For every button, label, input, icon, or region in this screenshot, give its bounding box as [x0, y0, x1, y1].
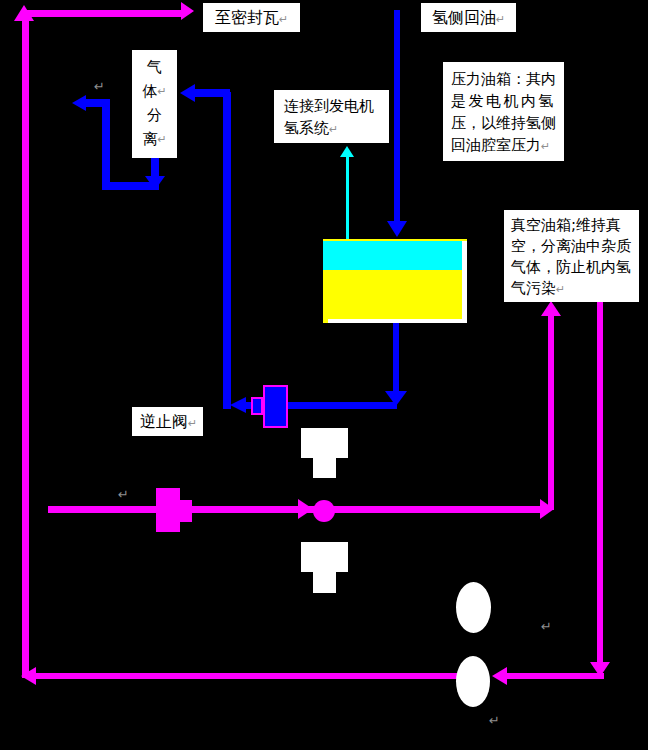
oil-valve-body — [156, 488, 180, 532]
arrowhead-left — [180, 84, 195, 102]
note-line: 气体，防止机内氢 — [511, 257, 639, 278]
paragraph-mark: ↵ — [329, 123, 338, 136]
arrowhead-left — [21, 667, 36, 685]
note-line: 气污染 — [511, 279, 556, 297]
right-vertical-oil-line — [597, 302, 603, 662]
arrowhead-left — [72, 95, 86, 111]
arrowhead-up — [541, 301, 561, 316]
valve-stem-symbol — [313, 572, 336, 593]
pressure-oil-tank — [323, 239, 467, 323]
hydrogen-gas-line — [346, 155, 349, 239]
pump-ellipse — [456, 656, 490, 707]
valve-actuator-symbol — [301, 428, 348, 458]
paragraph-mark: ↵ — [496, 13, 505, 26]
arrowhead-right — [181, 2, 194, 20]
paragraph-mark: ↵ — [279, 13, 288, 26]
note-line: 空，分离油中杂质 — [511, 236, 639, 257]
paragraph-mark: ↵ — [157, 134, 166, 145]
label-text: 至密封瓦 — [215, 8, 279, 27]
note-line: 真空油箱;维持真 — [511, 215, 639, 236]
tank-gas-space — [323, 241, 462, 270]
to-seal-gland-label: 至密封瓦↵ — [203, 3, 300, 32]
left-vertical-oil-line — [22, 18, 29, 678]
vent-horizontal-line — [102, 182, 159, 190]
tank-edge-highlight — [328, 319, 467, 323]
arrowhead-down — [387, 221, 407, 237]
diagram-canvas: 至密封瓦↵ 氢侧回油↵ 气 体↵ 分 离↵ 连接到发电机 氢系统↵ 压力油箱：其… — [0, 0, 648, 750]
arrowhead-left — [492, 667, 507, 685]
note-line: 是发电机内氢 — [451, 90, 564, 112]
label-char: 离 — [142, 127, 157, 151]
tank-outlet-line — [393, 323, 399, 393]
vacuum-tank-note: 真空油箱;维持真 空，分离油中杂质 气体，防止机内氢 气污染↵ — [504, 210, 639, 302]
check-valve-symbol — [263, 385, 288, 428]
valve-stem-symbol — [313, 458, 336, 478]
check-valve-port — [251, 397, 263, 415]
arrowhead-down — [590, 662, 610, 677]
valve-actuator-symbol — [301, 542, 348, 572]
note-line: 回油腔室压力 — [451, 136, 541, 154]
oil-valve-port — [180, 500, 192, 522]
label-char: 分 — [147, 103, 162, 127]
separator-inlet-line — [194, 89, 230, 97]
hydrogen-side-oil-return-label: 氢侧回油↵ — [421, 3, 516, 32]
arrowhead-up — [340, 146, 354, 157]
separator-outlet-line — [151, 158, 159, 178]
top-horizontal-oil-line — [24, 10, 181, 17]
paragraph-mark: ↵ — [489, 713, 500, 728]
vent-vertical-line — [102, 99, 110, 190]
vacuum-tank-oil-line — [548, 316, 554, 510]
check-valve-label: 逆止阀↵ — [132, 407, 203, 436]
oil-return-inlet-line — [394, 10, 400, 222]
paragraph-mark: ↵ — [118, 487, 129, 502]
tank-edge-highlight — [462, 241, 467, 323]
arrowhead-right — [298, 499, 313, 519]
paragraph-mark: ↵ — [188, 417, 197, 430]
pump-ellipse — [456, 582, 491, 633]
arrowhead-right — [540, 499, 554, 519]
label-text: 逆止阀 — [140, 412, 188, 431]
label-char: 气 — [147, 55, 162, 79]
label-text: 氢侧回油 — [432, 8, 496, 27]
paragraph-mark: ↵ — [541, 619, 552, 634]
arrowhead-left — [230, 397, 246, 413]
gas-separation-label: 气 体↵ 分 离↵ — [132, 50, 177, 158]
middle-horizontal-oil-line — [48, 506, 540, 513]
paragraph-mark: ↵ — [94, 79, 105, 94]
oil-line-node — [313, 500, 335, 522]
pressure-tank-note: 压力油箱：其内 是发电机内氢 压，以维持氢侧 回油腔室压力↵ — [443, 62, 564, 161]
vent-exit-line — [86, 99, 110, 107]
label-line: 连接到发电机 — [284, 95, 389, 117]
paragraph-mark: ↵ — [556, 283, 565, 296]
bottom-horizontal-oil-line — [36, 673, 457, 679]
paragraph-mark: ↵ — [541, 140, 550, 153]
label-char: 体 — [142, 79, 157, 103]
connect-generator-label: 连接到发电机 氢系统↵ — [274, 90, 389, 143]
note-line: 压，以维持氢侧 — [451, 112, 564, 134]
paragraph-mark: ↵ — [157, 86, 166, 97]
note-line: 压力油箱：其内 — [451, 68, 564, 90]
label-line: 氢系统 — [284, 119, 329, 137]
riser-line — [223, 92, 231, 409]
